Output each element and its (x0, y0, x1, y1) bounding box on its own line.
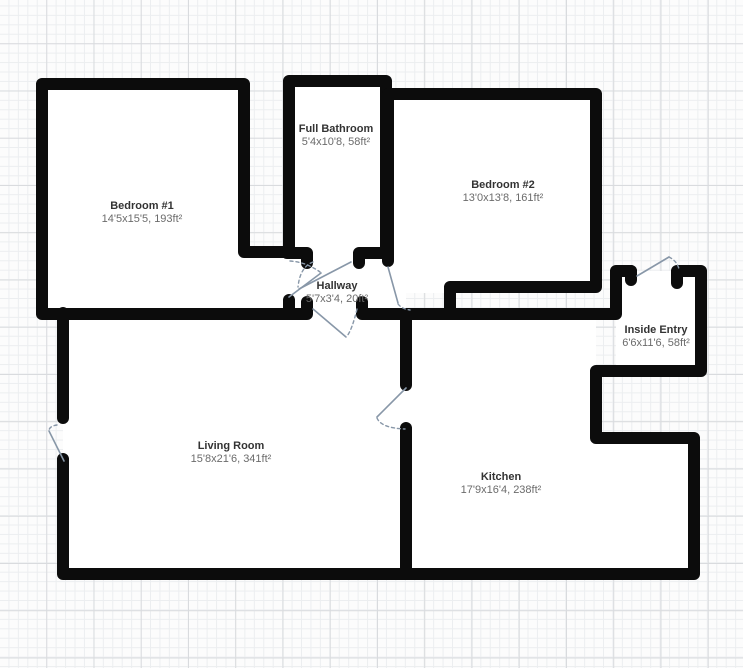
room-dims: 17'9x16'4, 238ft² (461, 484, 542, 497)
room-name: Living Room (191, 440, 272, 453)
room-area-inside-entry[interactable] (616, 271, 701, 371)
room-dims: 14'5x15'5, 193ft² (102, 213, 183, 226)
room-area-bedroom1[interactable] (42, 84, 244, 313)
floorplan-canvas: Bedroom #1 14'5x15'5, 193ft² Full Bathro… (0, 0, 743, 668)
room-area-bedroom1-nook[interactable] (244, 252, 289, 313)
room-name: Bedroom #2 (463, 179, 544, 192)
room-name: Hallway (306, 280, 368, 293)
room-area-bathroom[interactable] (289, 81, 386, 257)
room-dims: 5'4x10'8, 58ft² (299, 136, 374, 149)
room-label-bathroom: Full Bathroom 5'4x10'8, 58ft² (299, 123, 374, 149)
room-dims: 15'8x21'6, 341ft² (191, 453, 272, 466)
room-dims: 5'7x3'4, 20ft² (306, 293, 368, 306)
room-name: Bedroom #1 (102, 200, 183, 213)
room-label-inside-entry: Inside Entry 6'6x11'6, 58ft² (622, 324, 690, 350)
room-area-kitchen-east[interactable] (596, 438, 694, 574)
room-dims: 6'6x11'6, 58ft² (622, 337, 690, 350)
room-dims: 13'0x13'8, 161ft² (463, 192, 544, 205)
room-name: Kitchen (461, 471, 542, 484)
room-name: Inside Entry (622, 324, 690, 337)
room-area-kitchen[interactable] (406, 313, 596, 574)
room-label-bedroom1: Bedroom #1 14'5x15'5, 193ft² (102, 200, 183, 226)
room-label-bedroom2: Bedroom #2 13'0x13'8, 161ft² (463, 179, 544, 205)
room-label-hallway: Hallway 5'7x3'4, 20ft² (306, 280, 368, 306)
door-living-exterior[interactable] (49, 425, 64, 461)
room-interiors (42, 81, 701, 574)
room-label-kitchen: Kitchen 17'9x16'4, 238ft² (461, 471, 542, 497)
room-label-living-room: Living Room 15'8x21'6, 341ft² (191, 440, 272, 466)
room-name: Full Bathroom (299, 123, 374, 136)
